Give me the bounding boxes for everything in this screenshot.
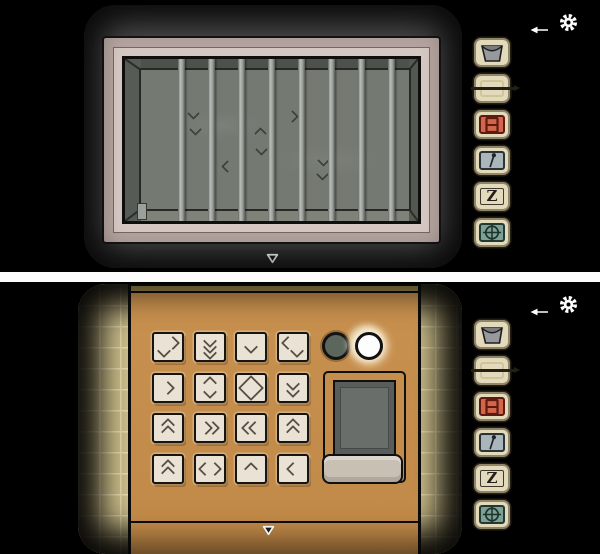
- window-bar: [178, 59, 185, 221]
- indicator-light-off[interactable]: [322, 332, 350, 360]
- chevron-up-icon: [244, 461, 258, 475]
- chevron-right-icon: [161, 380, 175, 394]
- red-hatch-icon: [479, 115, 505, 134]
- inventory-slot-letter-z[interactable]: Z: [474, 182, 510, 211]
- inventory-slot-red-hatch[interactable]: [474, 110, 510, 139]
- down-arrow-icon: [266, 253, 279, 264]
- chevron-left-icon: [285, 461, 299, 475]
- arrow-icon-glyph: [529, 307, 549, 317]
- red-hatch-icon: [479, 397, 505, 416]
- keypad-button-r1c4-left-and-down[interactable]: [277, 332, 309, 362]
- keypad-button-r1c3-down[interactable]: [235, 332, 267, 362]
- inventory-slot-pin[interactable]: [474, 146, 510, 175]
- arrow-icon-glyph: [529, 25, 549, 35]
- letter-z-icon: Z: [487, 471, 498, 486]
- inventory-slot-red-hatch[interactable]: [474, 392, 510, 421]
- gear-icon-glyph: [559, 13, 578, 32]
- inventory-sidebar: Z: [474, 38, 510, 247]
- chevron-down-icon: [202, 384, 216, 398]
- hatch-screen[interactable]: [333, 380, 396, 456]
- gear-icon[interactable]: [559, 295, 578, 318]
- inventory-slot-frame[interactable]: [474, 356, 510, 385]
- window-bar: [268, 59, 275, 221]
- crosshair-icon: [479, 505, 505, 524]
- look-down-arrow[interactable]: [262, 521, 275, 540]
- indicator-light-on[interactable]: [355, 332, 383, 360]
- inventory-slot-bucket[interactable]: [474, 38, 510, 67]
- window-bar: [418, 59, 421, 221]
- screen-barred-window: Z: [0, 0, 600, 272]
- keypad-button-r4c1-double-up[interactable]: [152, 454, 184, 484]
- look-down-arrow[interactable]: [266, 249, 279, 268]
- window-bar: [358, 59, 365, 221]
- gear-icon[interactable]: [559, 13, 578, 36]
- keypad-button-r2c4-double-down[interactable]: [277, 373, 309, 403]
- needle-item-icon: [471, 87, 515, 90]
- keypad-button-r2c3-diamond[interactable]: [235, 373, 267, 403]
- inventory-slot-bucket[interactable]: [474, 320, 510, 349]
- keypad-button-r2c2-up-down[interactable]: [194, 373, 226, 403]
- keypad-button-r4c2-left-right[interactable]: [194, 454, 226, 484]
- letter-z-icon: Z: [487, 189, 498, 204]
- keypad-button-r1c1-down-and-right[interactable]: [152, 332, 184, 362]
- chevron-down-icon: [244, 340, 258, 354]
- arrow-icon[interactable]: [529, 20, 549, 39]
- window-bar: [388, 59, 395, 221]
- window-bars: [125, 59, 418, 221]
- keypad-button-r3c2-double-right[interactable]: [194, 413, 226, 443]
- window-recess[interactable]: [122, 56, 421, 224]
- inventory-slot-frame[interactable]: [474, 74, 510, 103]
- inventory-sidebar: Z: [474, 320, 510, 529]
- screen-keypad-panel: Z: [0, 282, 600, 554]
- keypad-button-r3c3-double-left[interactable]: [235, 413, 267, 443]
- window-bar: [238, 59, 245, 221]
- screen-divider: [0, 272, 600, 282]
- keypad-button-r1c2-triple-down[interactable]: [194, 332, 226, 362]
- hatch-tray[interactable]: [322, 454, 403, 484]
- inventory-slot-letter-z[interactable]: Z: [474, 464, 510, 493]
- window-frame: [102, 36, 441, 244]
- bucket-icon: [479, 325, 505, 345]
- game-stage: Z: [0, 0, 600, 554]
- needle-item-icon: [471, 369, 515, 372]
- keypad-button-r3c4-double-up[interactable]: [277, 413, 309, 443]
- window-wall-vignette: [84, 5, 462, 268]
- down-arrow-icon: [262, 525, 275, 536]
- arrow-icon[interactable]: [529, 302, 549, 321]
- window-bar: [328, 59, 335, 221]
- bucket-icon: [479, 43, 505, 63]
- inventory-slot-crosshair[interactable]: [474, 218, 510, 247]
- keypad-button-r4c3-up[interactable]: [235, 454, 267, 484]
- keypad-wall-vignette: [78, 284, 462, 554]
- hatch-screen-glass: [340, 387, 389, 449]
- window-bar: [208, 59, 215, 221]
- inventory-slot-pin[interactable]: [474, 428, 510, 457]
- crosshair-icon: [479, 223, 505, 242]
- window-frame-inner: [113, 47, 430, 233]
- keypad-button-r2c1-right[interactable]: [152, 373, 184, 403]
- pin-icon: [479, 433, 505, 452]
- pin-icon: [479, 151, 505, 170]
- chevron-right-icon: [207, 461, 221, 475]
- gear-icon-glyph: [559, 295, 578, 314]
- keypad-button-r3c1-double-up[interactable]: [152, 413, 184, 443]
- keypad-button-r4c4-left[interactable]: [277, 454, 309, 484]
- inventory-slot-crosshair[interactable]: [474, 500, 510, 529]
- window-bar: [298, 59, 305, 221]
